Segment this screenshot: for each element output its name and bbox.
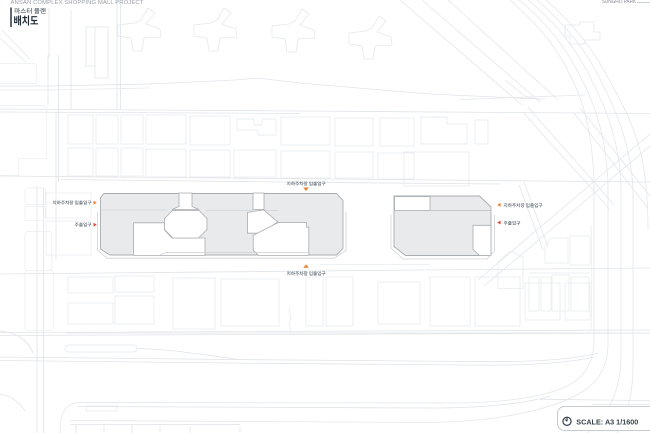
svg-text:SCALE: A3 1/1600: SCALE: A3 1/1600 (576, 417, 638, 426)
svg-text:SUNGHO PARK: SUNGHO PARK (602, 0, 637, 5)
svg-text:ANSAN COMPLEX SHOPPING MALL PR: ANSAN COMPLEX SHOPPING MALL PROJECT (11, 0, 144, 6)
